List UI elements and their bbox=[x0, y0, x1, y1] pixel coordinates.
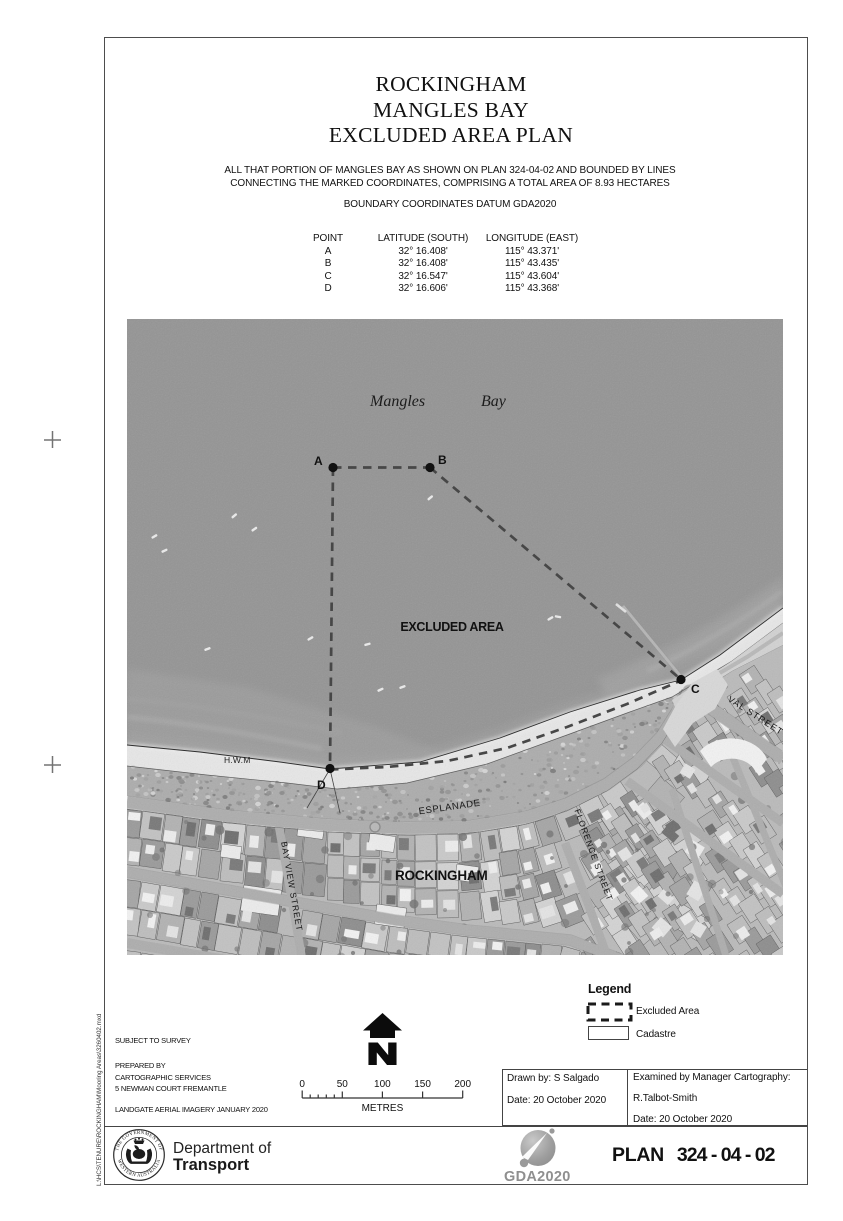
svg-text:GDA2020: GDA2020 bbox=[504, 1169, 571, 1185]
svg-text:150: 150 bbox=[414, 1079, 431, 1090]
svg-text:H.W.M: H.W.M bbox=[224, 755, 251, 765]
svg-text:50: 50 bbox=[337, 1079, 349, 1090]
svg-text:200: 200 bbox=[454, 1079, 471, 1090]
svg-text:N: N bbox=[367, 1038, 398, 1070]
svg-text:0: 0 bbox=[299, 1079, 305, 1090]
svg-text:Bay: Bay bbox=[481, 393, 507, 410]
svg-text:METRES: METRES bbox=[362, 1103, 404, 1114]
svg-text:D: D bbox=[317, 778, 326, 792]
svg-text:ROCKINGHAM: ROCKINGHAM bbox=[395, 868, 488, 883]
svg-text:EXCLUDED AREA: EXCLUDED AREA bbox=[400, 620, 504, 634]
svg-text:Mangles: Mangles bbox=[369, 393, 425, 410]
svg-text:100: 100 bbox=[374, 1079, 391, 1090]
svg-text:B: B bbox=[438, 453, 447, 467]
svg-text:A: A bbox=[314, 454, 323, 468]
svg-text:C: C bbox=[691, 682, 700, 696]
